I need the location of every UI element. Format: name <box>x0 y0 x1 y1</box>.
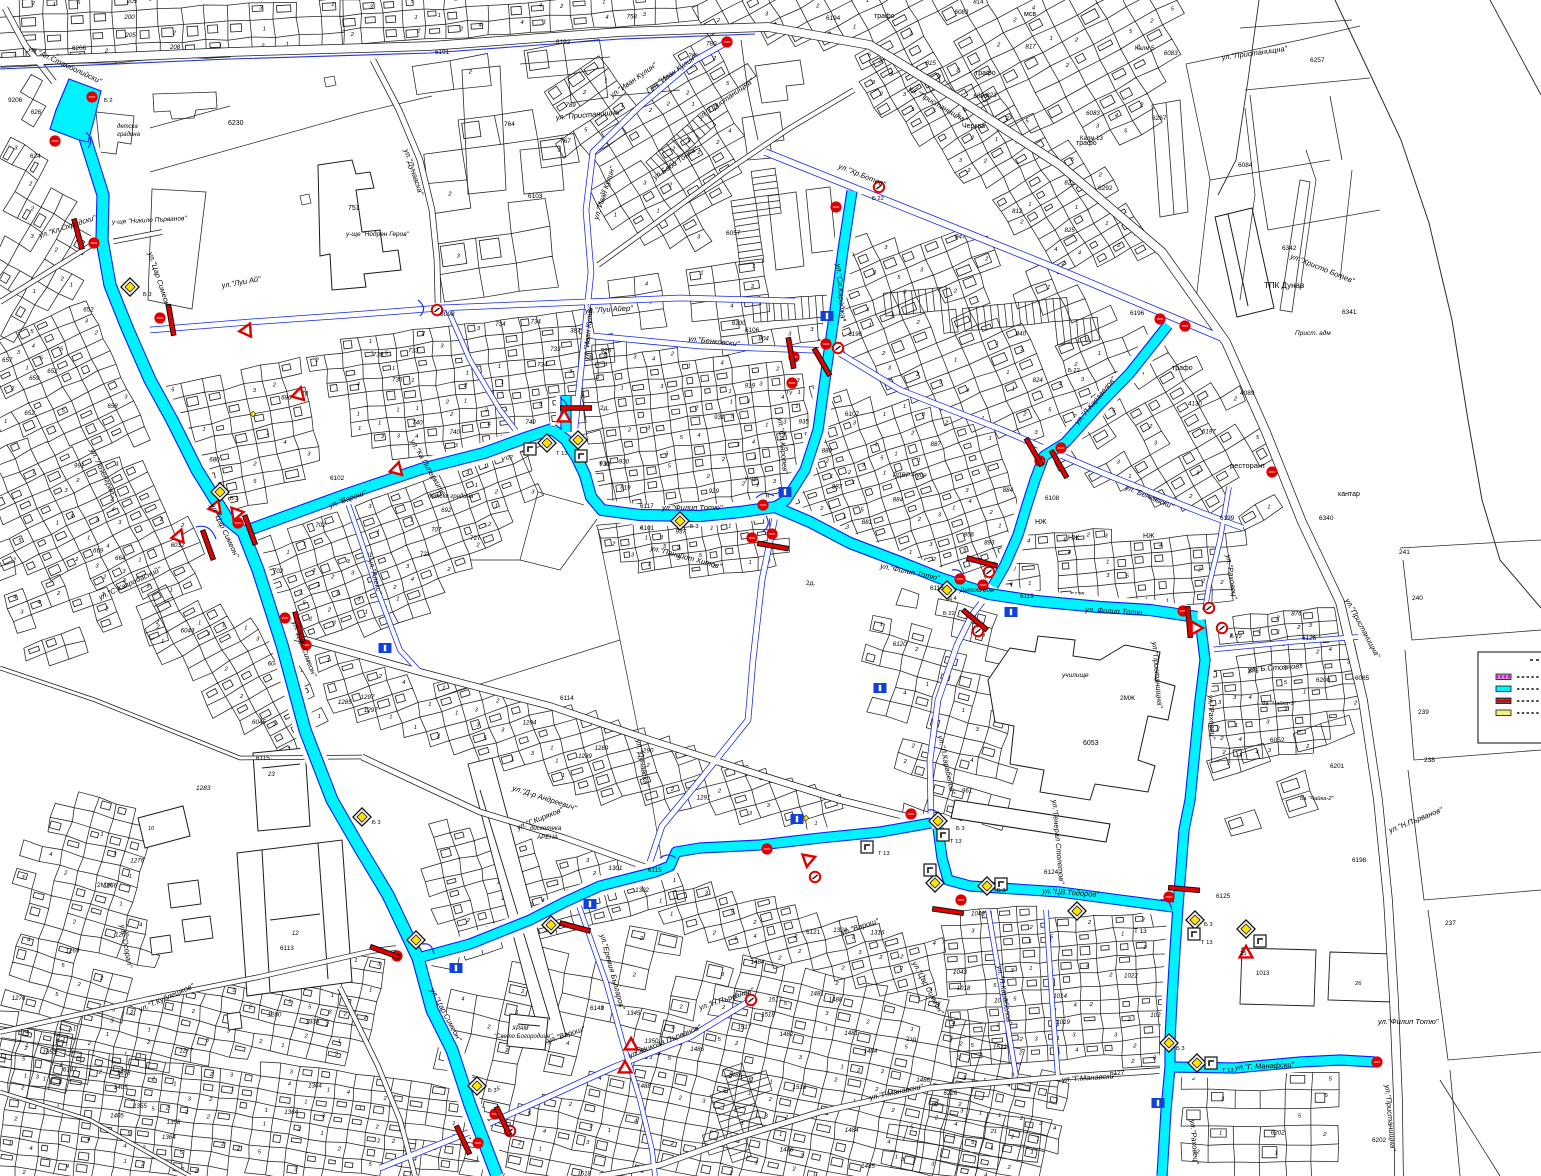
svg-text:1: 1 <box>4 419 7 425</box>
svg-text:669: 669 <box>93 548 104 555</box>
svg-text:Б 3: Б 3 <box>1176 1046 1185 1052</box>
svg-text:1: 1 <box>317 582 320 588</box>
svg-text:6198: 6198 <box>1352 857 1367 864</box>
svg-text:1: 1 <box>442 686 445 692</box>
svg-text:6292: 6292 <box>1098 185 1113 192</box>
svg-text:1: 1 <box>1128 474 1131 480</box>
svg-text:626: 626 <box>31 109 42 116</box>
svg-text:652: 652 <box>47 368 58 375</box>
svg-text:6257: 6257 <box>1310 57 1325 64</box>
svg-text:840: 840 <box>1016 331 1027 338</box>
svg-text:4: 4 <box>1027 538 1030 544</box>
svg-text:Б 22: Б 22 <box>1230 634 1242 640</box>
svg-text:1283: 1283 <box>196 785 211 792</box>
svg-text:1: 1 <box>737 442 740 448</box>
svg-text:205: 205 <box>126 0 138 5</box>
svg-text:1: 1 <box>410 517 413 523</box>
svg-text:градина: градина <box>117 132 141 138</box>
svg-text:1280: 1280 <box>268 1012 282 1019</box>
svg-text:1: 1 <box>392 366 395 372</box>
svg-text:815: 815 <box>926 60 937 67</box>
svg-text:1: 1 <box>263 26 266 32</box>
svg-text:1: 1 <box>883 470 886 476</box>
svg-text:1: 1 <box>895 1155 898 1161</box>
svg-text:4: 4 <box>721 361 724 367</box>
svg-text:856: 856 <box>964 532 975 539</box>
svg-text:4: 4 <box>903 691 906 697</box>
svg-text:1018: 1018 <box>957 985 971 992</box>
svg-text:1: 1 <box>918 457 921 463</box>
svg-text:1: 1 <box>161 639 164 645</box>
svg-text:1: 1 <box>1006 370 1009 376</box>
svg-text:1: 1 <box>1028 202 1031 208</box>
svg-text:1: 1 <box>814 821 817 827</box>
svg-text:764: 764 <box>504 121 515 128</box>
svg-text:6340: 6340 <box>1319 515 1334 522</box>
svg-text:767: 767 <box>560 138 571 145</box>
svg-text:4: 4 <box>1054 247 1057 253</box>
svg-text:1: 1 <box>656 208 659 214</box>
svg-text:4: 4 <box>49 852 52 858</box>
svg-text:6045: 6045 <box>252 719 266 726</box>
svg-text:6341: 6341 <box>1342 309 1357 316</box>
svg-text:6115: 6115 <box>256 755 270 762</box>
svg-text:1364: 1364 <box>162 1134 176 1141</box>
svg-text:812: 812 <box>1012 208 1023 215</box>
svg-text:4: 4 <box>1249 695 1252 701</box>
svg-text:Б 3: Б 3 <box>690 524 699 530</box>
svg-text:6127: 6127 <box>1110 1070 1125 1077</box>
svg-text:1: 1 <box>475 483 478 489</box>
svg-text:1: 1 <box>327 658 330 664</box>
svg-text:1: 1 <box>700 271 703 277</box>
svg-text:ул."Филип Тотю": ул."Филип Тотю" <box>1377 1017 1439 1026</box>
svg-text:4: 4 <box>1074 1003 1077 1009</box>
svg-text:4: 4 <box>479 23 482 29</box>
svg-text:1517: 1517 <box>768 997 782 1004</box>
svg-text:4: 4 <box>288 1082 291 1088</box>
svg-text:1: 1 <box>43 1076 46 1082</box>
svg-text:1276: 1276 <box>130 857 144 864</box>
svg-text:12: 12 <box>292 931 299 937</box>
svg-text:4: 4 <box>38 600 41 606</box>
svg-text:6196: 6196 <box>1130 310 1145 317</box>
svg-text:1338: 1338 <box>305 1019 319 1026</box>
svg-text:758: 758 <box>627 14 638 21</box>
svg-text:1: 1 <box>1121 932 1124 938</box>
svg-text:1: 1 <box>748 1091 751 1097</box>
svg-text:1: 1 <box>53 2 56 8</box>
svg-text:1: 1 <box>100 832 103 838</box>
svg-text:1517: 1517 <box>737 1024 751 1031</box>
svg-text:624: 624 <box>30 153 41 160</box>
svg-text:4: 4 <box>139 922 142 928</box>
svg-text:Т 13: Т 13 <box>950 839 962 845</box>
svg-text:1364: 1364 <box>308 1082 322 1089</box>
svg-text:1481: 1481 <box>810 991 824 998</box>
svg-text:ХРАМ: ХРАМ <box>511 1026 529 1032</box>
svg-text:"Свето Богородице": "Свето Богородице" <box>494 1034 553 1040</box>
svg-text:1: 1 <box>148 1027 151 1033</box>
svg-text:ресторант: ресторант <box>1230 461 1266 470</box>
svg-text:1364: 1364 <box>284 1109 298 1116</box>
svg-text:1289: 1289 <box>578 753 592 760</box>
svg-text:4: 4 <box>1115 113 1118 119</box>
svg-text:1: 1 <box>963 1076 966 1082</box>
svg-text:1: 1 <box>414 725 417 731</box>
svg-text:1: 1 <box>608 1128 611 1134</box>
svg-text:1: 1 <box>327 1088 330 1094</box>
svg-text:200: 200 <box>123 14 135 21</box>
svg-text:1: 1 <box>495 503 498 509</box>
svg-text:1: 1 <box>979 1110 982 1116</box>
svg-text:876: 876 <box>1291 610 1302 617</box>
svg-text:1: 1 <box>455 711 458 717</box>
svg-text:23: 23 <box>267 772 275 778</box>
svg-text:1269: 1269 <box>66 948 80 955</box>
svg-text:1: 1 <box>1258 629 1261 635</box>
svg-text:1518: 1518 <box>792 1084 806 1091</box>
svg-text:1: 1 <box>1037 1137 1040 1143</box>
svg-text:6149: 6149 <box>590 1005 605 1012</box>
svg-text:4: 4 <box>969 499 972 505</box>
svg-text:1289: 1289 <box>595 745 609 752</box>
svg-text:6202: 6202 <box>1271 1129 1285 1136</box>
svg-text:1484: 1484 <box>845 1127 859 1134</box>
svg-text:6106: 6106 <box>745 327 760 334</box>
svg-text:1: 1 <box>359 1106 362 1112</box>
svg-text:1: 1 <box>33 289 36 295</box>
svg-text:1: 1 <box>688 363 691 369</box>
svg-text:ба "Чайка-2": ба "Чайка-2" <box>1300 795 1335 802</box>
svg-text:6098: 6098 <box>440 311 455 318</box>
svg-text:1: 1 <box>331 2 334 8</box>
svg-text:1488: 1488 <box>829 996 843 1003</box>
svg-text:734: 734 <box>531 318 542 325</box>
svg-text:1: 1 <box>411 378 414 384</box>
svg-text:Прист. адм: Прист. адм <box>1295 329 1331 337</box>
svg-text:664: 664 <box>115 555 126 562</box>
svg-text:1: 1 <box>813 1172 816 1176</box>
svg-text:237: 237 <box>1445 920 1456 927</box>
svg-text:659: 659 <box>29 375 40 382</box>
svg-text:735: 735 <box>392 376 403 383</box>
svg-text:4: 4 <box>781 395 784 401</box>
svg-text:1: 1 <box>202 427 205 433</box>
svg-text:1: 1 <box>1028 581 1031 587</box>
svg-text:1: 1 <box>70 283 73 289</box>
svg-text:6191: 6191 <box>435 49 450 56</box>
svg-text:4: 4 <box>752 440 755 446</box>
svg-text:1484: 1484 <box>864 1048 878 1055</box>
svg-text:6199: 6199 <box>1220 515 1235 522</box>
svg-text:1: 1 <box>550 746 553 752</box>
svg-text:1: 1 <box>1012 387 1015 393</box>
svg-text:1: 1 <box>501 380 504 386</box>
svg-text:6196: 6196 <box>848 331 862 338</box>
svg-text:4: 4 <box>87 1137 90 1143</box>
svg-text:1: 1 <box>318 714 321 720</box>
svg-text:6102: 6102 <box>330 475 345 482</box>
svg-text:1: 1 <box>511 757 514 763</box>
svg-text:1: 1 <box>798 390 801 396</box>
svg-text:4089: 4089 <box>1240 390 1255 397</box>
svg-text:6201: 6201 <box>1330 763 1345 770</box>
svg-text:Т 13: Т 13 <box>1201 940 1213 946</box>
svg-text:931: 931 <box>714 414 724 421</box>
svg-text:1: 1 <box>589 1124 592 1130</box>
svg-text:1: 1 <box>841 1064 844 1070</box>
svg-text:1: 1 <box>728 524 731 530</box>
svg-text:1: 1 <box>869 323 872 329</box>
svg-text:ул."Филип Тотю": ул."Филип Тотю" <box>661 503 723 512</box>
svg-text:1: 1 <box>149 0 152 3</box>
svg-text:4: 4 <box>60 1063 63 1069</box>
svg-text:4: 4 <box>25 1030 28 1036</box>
svg-text:4: 4 <box>1159 543 1162 549</box>
svg-text:1: 1 <box>962 708 965 714</box>
svg-text:6121: 6121 <box>806 929 821 936</box>
svg-text:1043: 1043 <box>953 969 967 976</box>
svg-text:1: 1 <box>692 102 695 108</box>
svg-text:1: 1 <box>671 1025 674 1031</box>
svg-text:1: 1 <box>79 1059 82 1065</box>
svg-text:887: 887 <box>931 441 942 448</box>
svg-text:1: 1 <box>62 1038 65 1044</box>
svg-text:1: 1 <box>874 442 877 448</box>
svg-text:1355: 1355 <box>133 1103 147 1110</box>
svg-text:789: 789 <box>565 102 576 109</box>
svg-text:1: 1 <box>113 850 116 856</box>
svg-text:735: 735 <box>373 352 384 359</box>
svg-text:6113: 6113 <box>280 945 294 952</box>
svg-text:1: 1 <box>1020 347 1023 353</box>
svg-text:1: 1 <box>124 1159 127 1165</box>
svg-text:1: 1 <box>734 936 737 942</box>
svg-text:трафо: трафо <box>1076 140 1097 147</box>
svg-text:4: 4 <box>27 937 30 943</box>
svg-text:1: 1 <box>354 958 357 964</box>
svg-text:686: 686 <box>281 394 292 401</box>
svg-text:919: 919 <box>745 383 756 390</box>
svg-text:2МЖ: 2МЖ <box>1120 695 1135 702</box>
svg-text:4: 4 <box>1329 647 1332 653</box>
svg-text:1: 1 <box>926 682 929 688</box>
svg-text:1: 1 <box>555 758 558 764</box>
svg-text:1043: 1043 <box>971 910 985 917</box>
svg-text:1: 1 <box>281 1043 284 1049</box>
svg-text:733: 733 <box>408 348 419 355</box>
svg-text:6126: 6126 <box>1302 635 1317 642</box>
svg-text:4: 4 <box>283 440 286 446</box>
svg-text:2МЖ: 2МЖ <box>97 882 112 889</box>
svg-text:4: 4 <box>933 941 936 947</box>
svg-text:училище: училище <box>1061 672 1089 679</box>
svg-text:Детски дом: Детски дом <box>959 588 994 594</box>
svg-text:1: 1 <box>730 400 733 406</box>
svg-text:241: 241 <box>1399 549 1410 556</box>
svg-text:6194: 6194 <box>826 15 841 22</box>
svg-text:929: 929 <box>709 488 720 495</box>
svg-text:884: 884 <box>893 497 904 504</box>
svg-text:1: 1 <box>466 371 469 377</box>
svg-text:1488: 1488 <box>728 1072 742 1079</box>
svg-text:Б 3: Б 3 <box>997 888 1006 894</box>
svg-text:6114: 6114 <box>560 695 574 702</box>
svg-text:1: 1 <box>288 999 291 1005</box>
svg-text:1: 1 <box>903 404 906 410</box>
svg-text:1: 1 <box>753 455 756 461</box>
svg-text:1014: 1014 <box>1053 993 1067 1000</box>
svg-text:1: 1 <box>755 1160 758 1166</box>
svg-text:1486: 1486 <box>780 1146 794 1153</box>
svg-text:1: 1 <box>32 470 35 476</box>
svg-text:1: 1 <box>883 412 886 418</box>
svg-text:4: 4 <box>566 1041 569 1047</box>
svg-text:1: 1 <box>320 1131 323 1137</box>
svg-text:887: 887 <box>832 483 843 490</box>
svg-text:1: 1 <box>795 404 798 410</box>
svg-text:4: 4 <box>411 577 414 583</box>
svg-text:1: 1 <box>26 366 29 372</box>
svg-text:1: 1 <box>365 609 368 615</box>
svg-text:1: 1 <box>369 988 372 994</box>
svg-text:6342: 6342 <box>1282 245 1297 252</box>
svg-text:1: 1 <box>996 341 999 347</box>
svg-text:4: 4 <box>29 1146 32 1152</box>
svg-text:1: 1 <box>1106 559 1109 565</box>
svg-text:4: 4 <box>521 20 524 26</box>
svg-text:1: 1 <box>998 1113 1001 1119</box>
svg-text:4: 4 <box>1239 737 1242 743</box>
svg-text:T 13: T 13 <box>1134 928 1147 935</box>
svg-text:1: 1 <box>673 878 676 884</box>
svg-text:1: 1 <box>880 622 883 628</box>
svg-text:4: 4 <box>966 388 969 394</box>
svg-text:кантар: кантар <box>1338 491 1360 498</box>
svg-text:1: 1 <box>659 898 662 904</box>
svg-text:1: 1 <box>853 24 856 30</box>
svg-text:1: 1 <box>728 389 731 395</box>
svg-text:Б 3: Б 3 <box>143 292 152 298</box>
svg-text:1: 1 <box>998 524 1001 530</box>
svg-text:1: 1 <box>1029 966 1032 972</box>
svg-text:1285: 1285 <box>338 699 352 706</box>
svg-text:1: 1 <box>116 461 119 467</box>
svg-text:1: 1 <box>266 431 269 437</box>
svg-text:1: 1 <box>1030 1150 1033 1156</box>
svg-text:1: 1 <box>953 1134 956 1140</box>
svg-text:1: 1 <box>614 212 617 218</box>
svg-text:4: 4 <box>866 308 869 314</box>
svg-text:1: 1 <box>952 505 955 511</box>
svg-text:702: 702 <box>273 568 284 575</box>
svg-text:4: 4 <box>652 357 655 363</box>
svg-text:1: 1 <box>304 1100 307 1106</box>
svg-text:1: 1 <box>866 0 869 4</box>
svg-text:6119: 6119 <box>1020 593 1034 600</box>
svg-text:1: 1 <box>621 385 624 391</box>
svg-text:трафо: трафо <box>1172 365 1193 372</box>
svg-text:680: 680 <box>209 456 220 463</box>
svg-text:1358: 1358 <box>167 1119 181 1126</box>
svg-text:804: 804 <box>759 336 770 343</box>
svg-text:4: 4 <box>1053 1126 1056 1132</box>
svg-text:1: 1 <box>670 911 673 917</box>
svg-text:721: 721 <box>420 551 431 558</box>
svg-text:1291: 1291 <box>697 794 711 801</box>
svg-text:1: 1 <box>1235 723 1238 729</box>
svg-text:1: 1 <box>377 530 380 536</box>
svg-text:4: 4 <box>730 303 733 309</box>
svg-text:1512: 1512 <box>993 1044 1007 1051</box>
svg-text:ТПК Дунав: ТПК Дунав <box>1264 281 1304 290</box>
svg-text:6200: 6200 <box>1316 677 1331 684</box>
svg-text:Б 3: Б 3 <box>488 1088 497 1094</box>
svg-text:751: 751 <box>348 205 360 212</box>
svg-text:658: 658 <box>107 403 118 410</box>
svg-text:1: 1 <box>989 436 992 442</box>
svg-text:4: 4 <box>112 507 115 513</box>
svg-text:4: 4 <box>970 758 973 764</box>
svg-text:1: 1 <box>498 364 501 370</box>
svg-text:1486: 1486 <box>690 1046 704 1053</box>
svg-text:1: 1 <box>753 264 756 270</box>
svg-text:1: 1 <box>396 596 399 602</box>
svg-text:4: 4 <box>13 595 16 601</box>
svg-text:6101: 6101 <box>640 525 655 532</box>
svg-text:2д.: 2д. <box>806 580 815 587</box>
svg-text:1: 1 <box>994 1129 997 1135</box>
svg-text:Б 3: Б 3 <box>1204 922 1213 928</box>
svg-text:884: 884 <box>1003 487 1014 494</box>
svg-text:4: 4 <box>106 544 109 550</box>
svg-text:1: 1 <box>891 313 894 319</box>
svg-text:880: 880 <box>822 447 833 454</box>
svg-text:814: 814 <box>973 0 984 5</box>
svg-text:4: 4 <box>1255 750 1258 756</box>
svg-text:652: 652 <box>24 410 35 417</box>
svg-text:1: 1 <box>416 406 419 412</box>
svg-text:6083: 6083 <box>1086 110 1100 117</box>
svg-text:1: 1 <box>263 1122 266 1128</box>
svg-text:4: 4 <box>488 422 491 428</box>
svg-text:1: 1 <box>73 1027 76 1033</box>
svg-text:6043: 6043 <box>181 627 195 634</box>
svg-text:4: 4 <box>347 1090 350 1096</box>
svg-text:4: 4 <box>753 934 756 940</box>
svg-text:6115: 6115 <box>648 867 662 874</box>
svg-text:1: 1 <box>378 420 381 426</box>
svg-text:4: 4 <box>66 1164 69 1170</box>
svg-text:4: 4 <box>887 1140 890 1146</box>
svg-text:6052: 6052 <box>1270 737 1285 744</box>
svg-text:6107: 6107 <box>845 411 860 418</box>
svg-text:1: 1 <box>605 362 608 368</box>
svg-text:Т 13: Т 13 <box>1222 1068 1234 1074</box>
svg-text:1: 1 <box>170 587 173 593</box>
svg-text:4: 4 <box>123 1144 126 1150</box>
svg-text:929: 929 <box>601 347 612 354</box>
svg-text:6197: 6197 <box>1202 429 1216 436</box>
svg-text:740: 740 <box>450 429 461 436</box>
svg-text:Б 22: Б 22 <box>872 196 884 202</box>
svg-text:1: 1 <box>438 13 441 19</box>
svg-text:трафо: трафо <box>874 13 895 20</box>
svg-text:НЖ: НЖ <box>1143 533 1155 540</box>
svg-text:1: 1 <box>452 1121 455 1127</box>
svg-text:1353: 1353 <box>42 1049 56 1056</box>
